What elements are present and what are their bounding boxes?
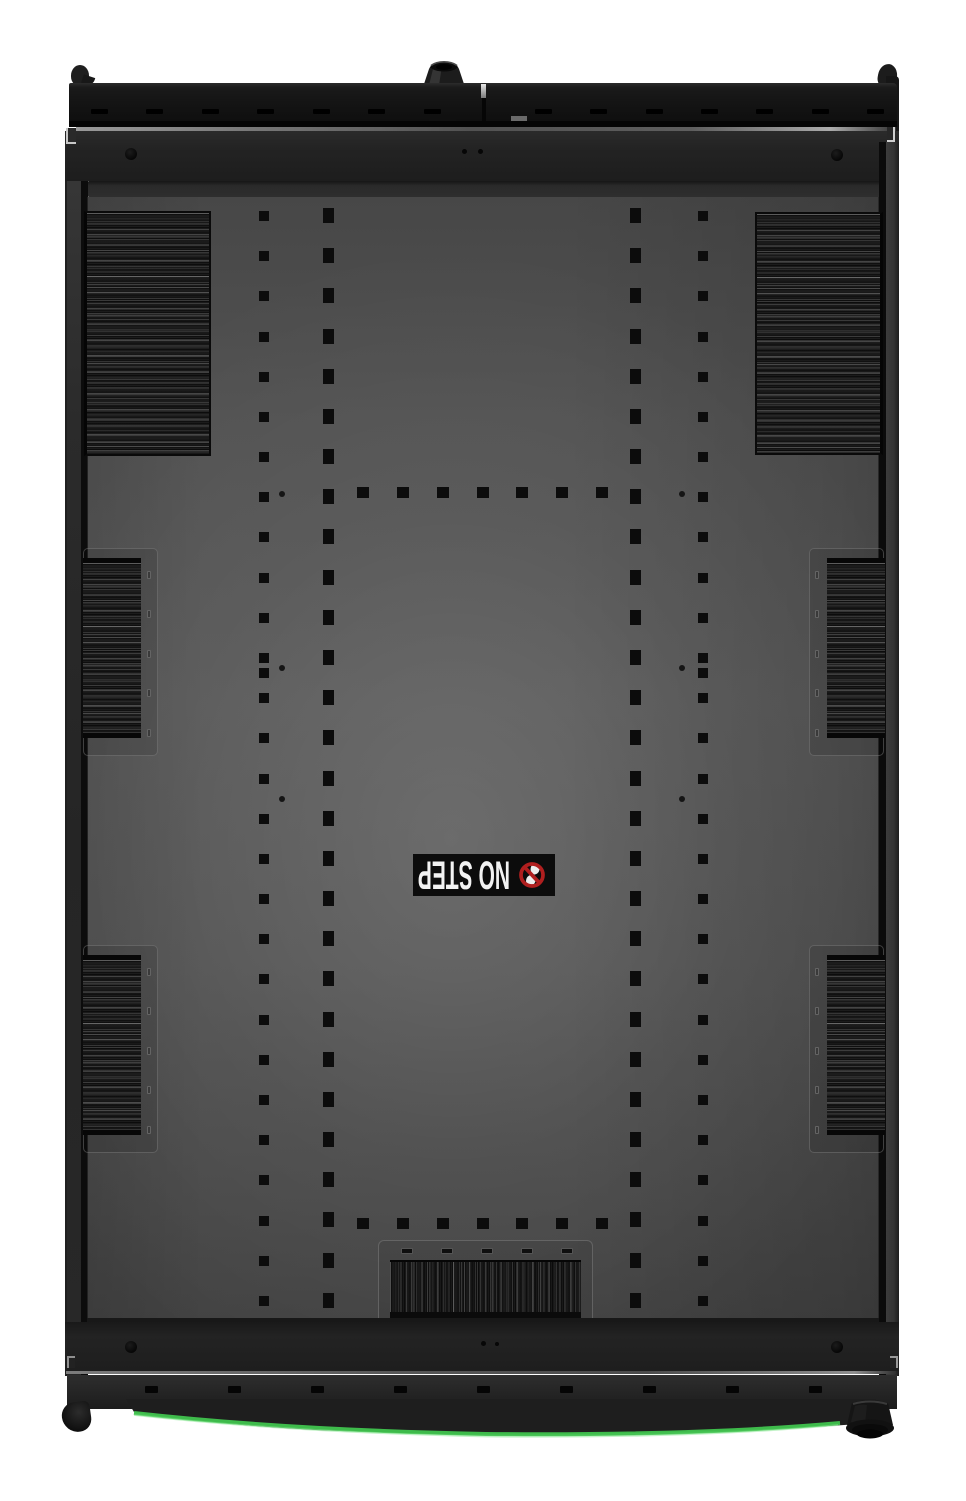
svg-text:NO STEP: NO STEP (418, 854, 510, 896)
